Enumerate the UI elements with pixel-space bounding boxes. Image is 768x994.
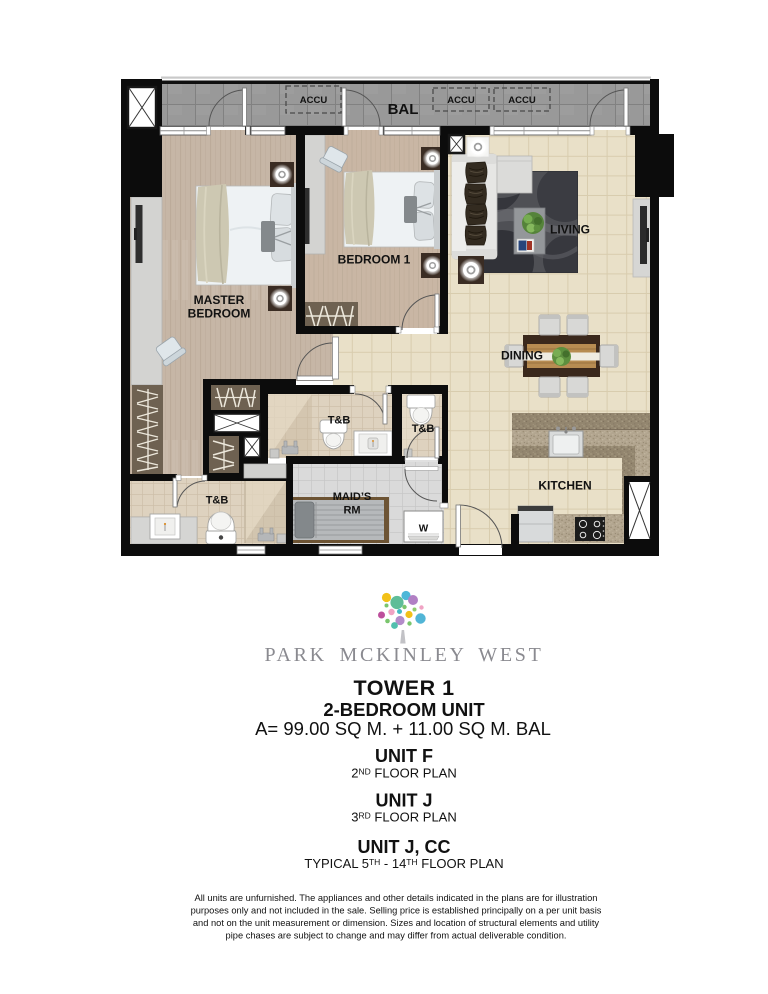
svg-text:T&B: T&B (412, 423, 435, 435)
svg-text:pipe chases are subject to cha: pipe chases are subject to change and ma… (226, 931, 567, 941)
svg-text:ACCU: ACCU (300, 95, 328, 106)
svg-text:UNIT F: UNIT F (375, 746, 433, 766)
svg-text:UNIT J: UNIT J (375, 791, 432, 811)
svg-text:T&B: T&B (328, 415, 351, 427)
svg-text:T&B: T&B (206, 495, 229, 507)
svg-text:BEDROOM: BEDROOM (188, 307, 251, 321)
svg-text:MAID’S: MAID’S (333, 491, 372, 503)
svg-text:ACCU: ACCU (508, 95, 536, 106)
svg-text:A= 99.00 SQ M. + 11.00 SQ M. B: A= 99.00 SQ M. + 11.00 SQ M. BAL (255, 718, 551, 739)
svg-text:2-BEDROOM UNIT: 2-BEDROOM UNIT (323, 699, 485, 720)
svg-text:BEDROOM 1: BEDROOM 1 (338, 253, 411, 267)
svg-text:All units are unfurnished. The: All units are unfurnished. The appliance… (195, 893, 598, 903)
svg-text:TOWER 1: TOWER 1 (353, 676, 454, 700)
svg-text:UNIT J, CC: UNIT J, CC (357, 837, 450, 857)
svg-text:purposes only and not included: purposes only and not included in the sa… (191, 906, 602, 916)
svg-text:BAL: BAL (388, 101, 419, 118)
svg-text:MASTER: MASTER (194, 293, 245, 307)
svg-text:RM: RM (343, 505, 360, 517)
svg-text:LIVING: LIVING (550, 223, 590, 237)
svg-text:ACCU: ACCU (447, 95, 475, 106)
svg-text:TYPICAL 5TH - 14TH FLOOR PLAN: TYPICAL 5TH - 14TH FLOOR PLAN (304, 856, 503, 871)
svg-text:KITCHEN: KITCHEN (538, 479, 591, 493)
svg-text:DINING: DINING (501, 349, 543, 363)
svg-text:and not on the unit measuremen: and not on the unit measurement or dimen… (193, 918, 600, 928)
svg-text:W: W (419, 524, 429, 535)
svg-text:PARK MCKINLEY WEST: PARK MCKINLEY WEST (265, 644, 544, 666)
